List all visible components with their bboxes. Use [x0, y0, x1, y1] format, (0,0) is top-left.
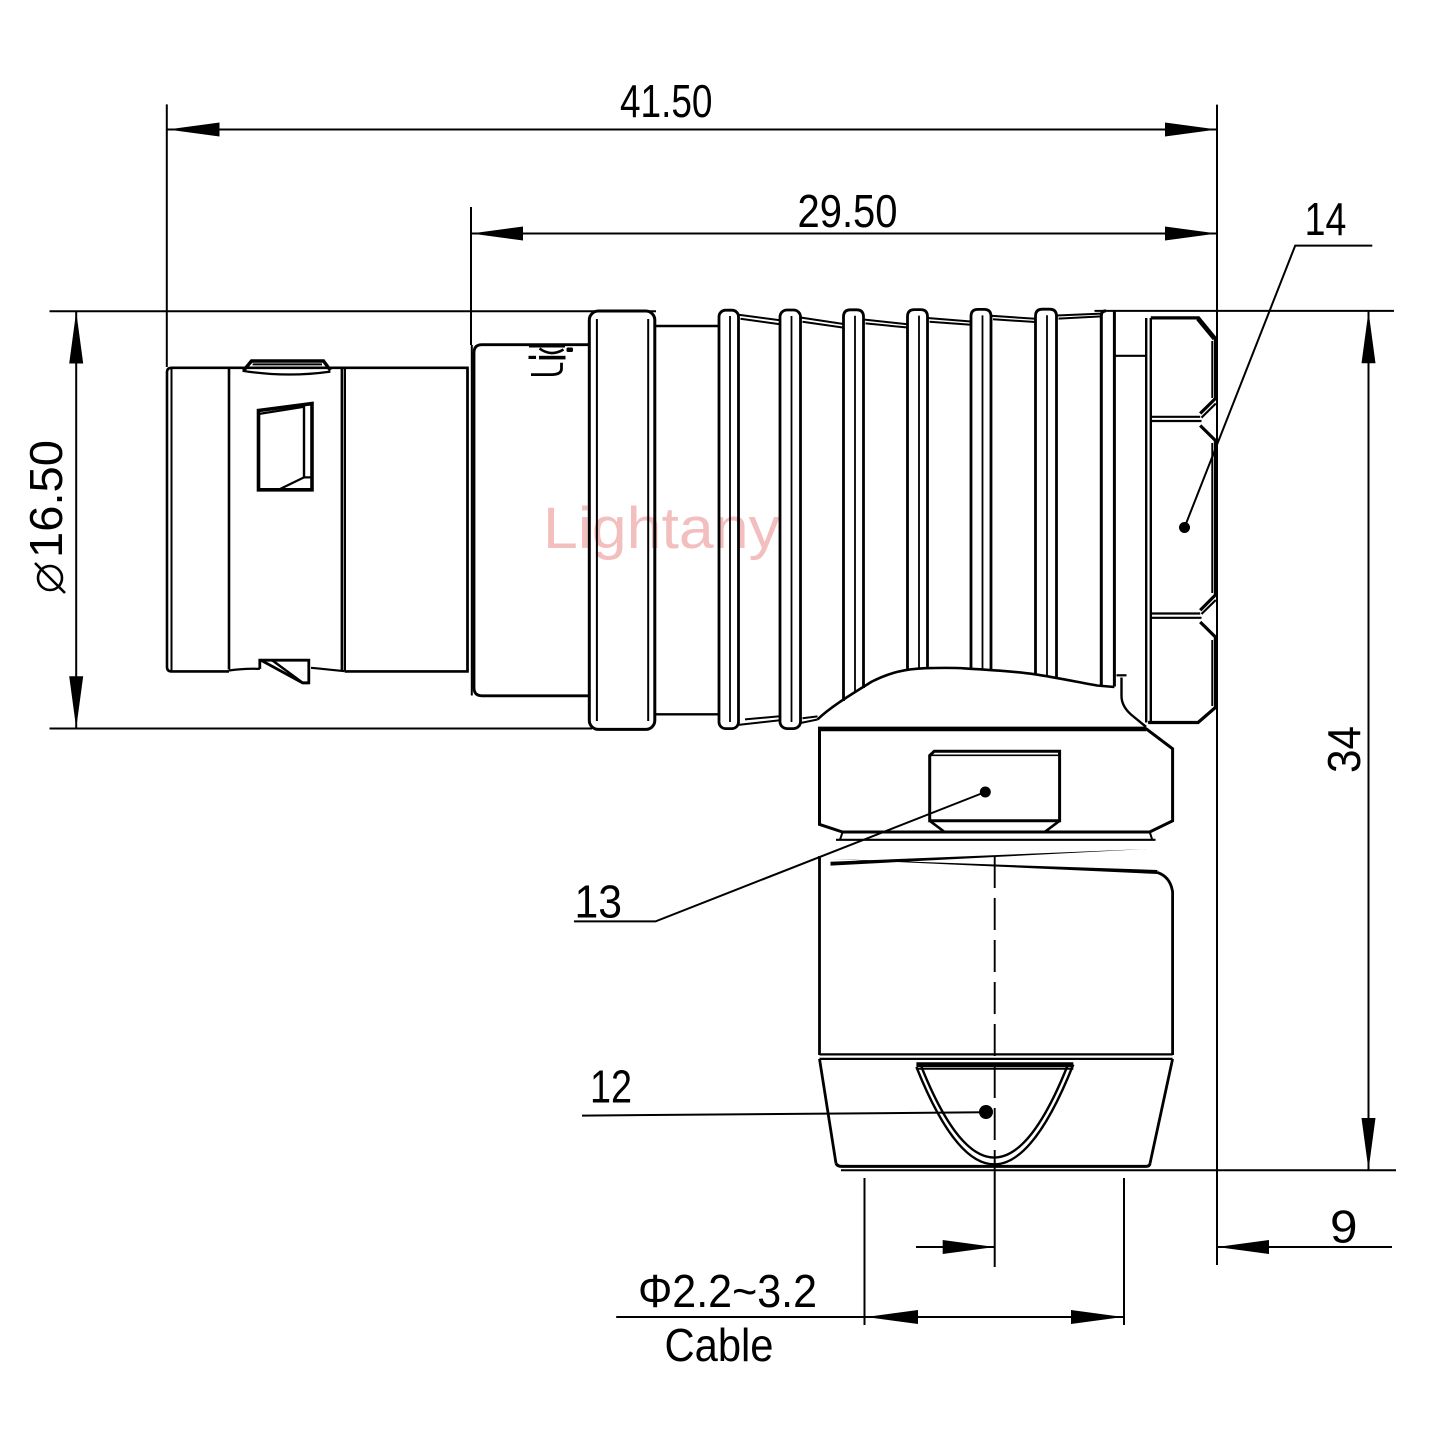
svg-text:29.50: 29.50 [798, 185, 898, 237]
svg-text:41.50: 41.50 [620, 75, 713, 127]
svg-text:Cable: Cable [665, 1319, 774, 1371]
svg-text:16.50: 16.50 [20, 440, 72, 558]
svg-text:34: 34 [1318, 726, 1370, 773]
svg-text:Φ2.2~3.2: Φ2.2~3.2 [638, 1265, 817, 1317]
svg-text:12: 12 [590, 1061, 632, 1113]
svg-text:14: 14 [1305, 193, 1347, 245]
svg-text:9: 9 [1330, 1201, 1358, 1253]
svg-text:Lightany: Lightany [543, 496, 780, 561]
svg-text:13: 13 [575, 876, 623, 928]
